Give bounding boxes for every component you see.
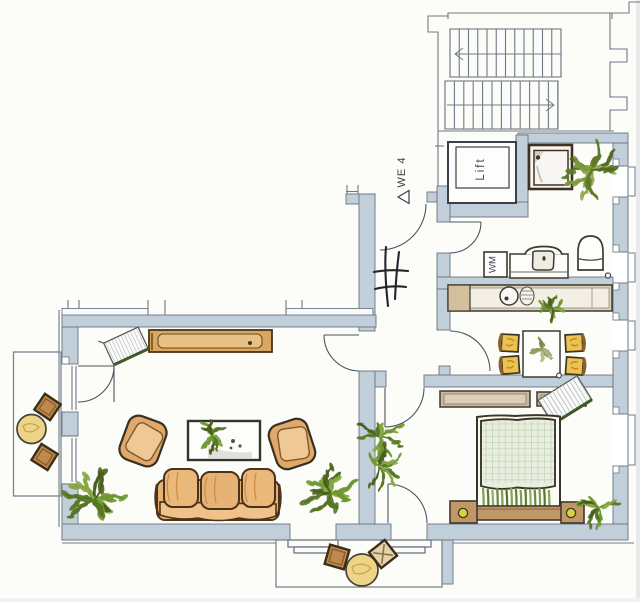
svg-text:WE 4: WE 4 (396, 157, 408, 188)
svg-text:WM: WM (488, 256, 499, 273)
svg-text:Lift: Lift (475, 157, 487, 180)
